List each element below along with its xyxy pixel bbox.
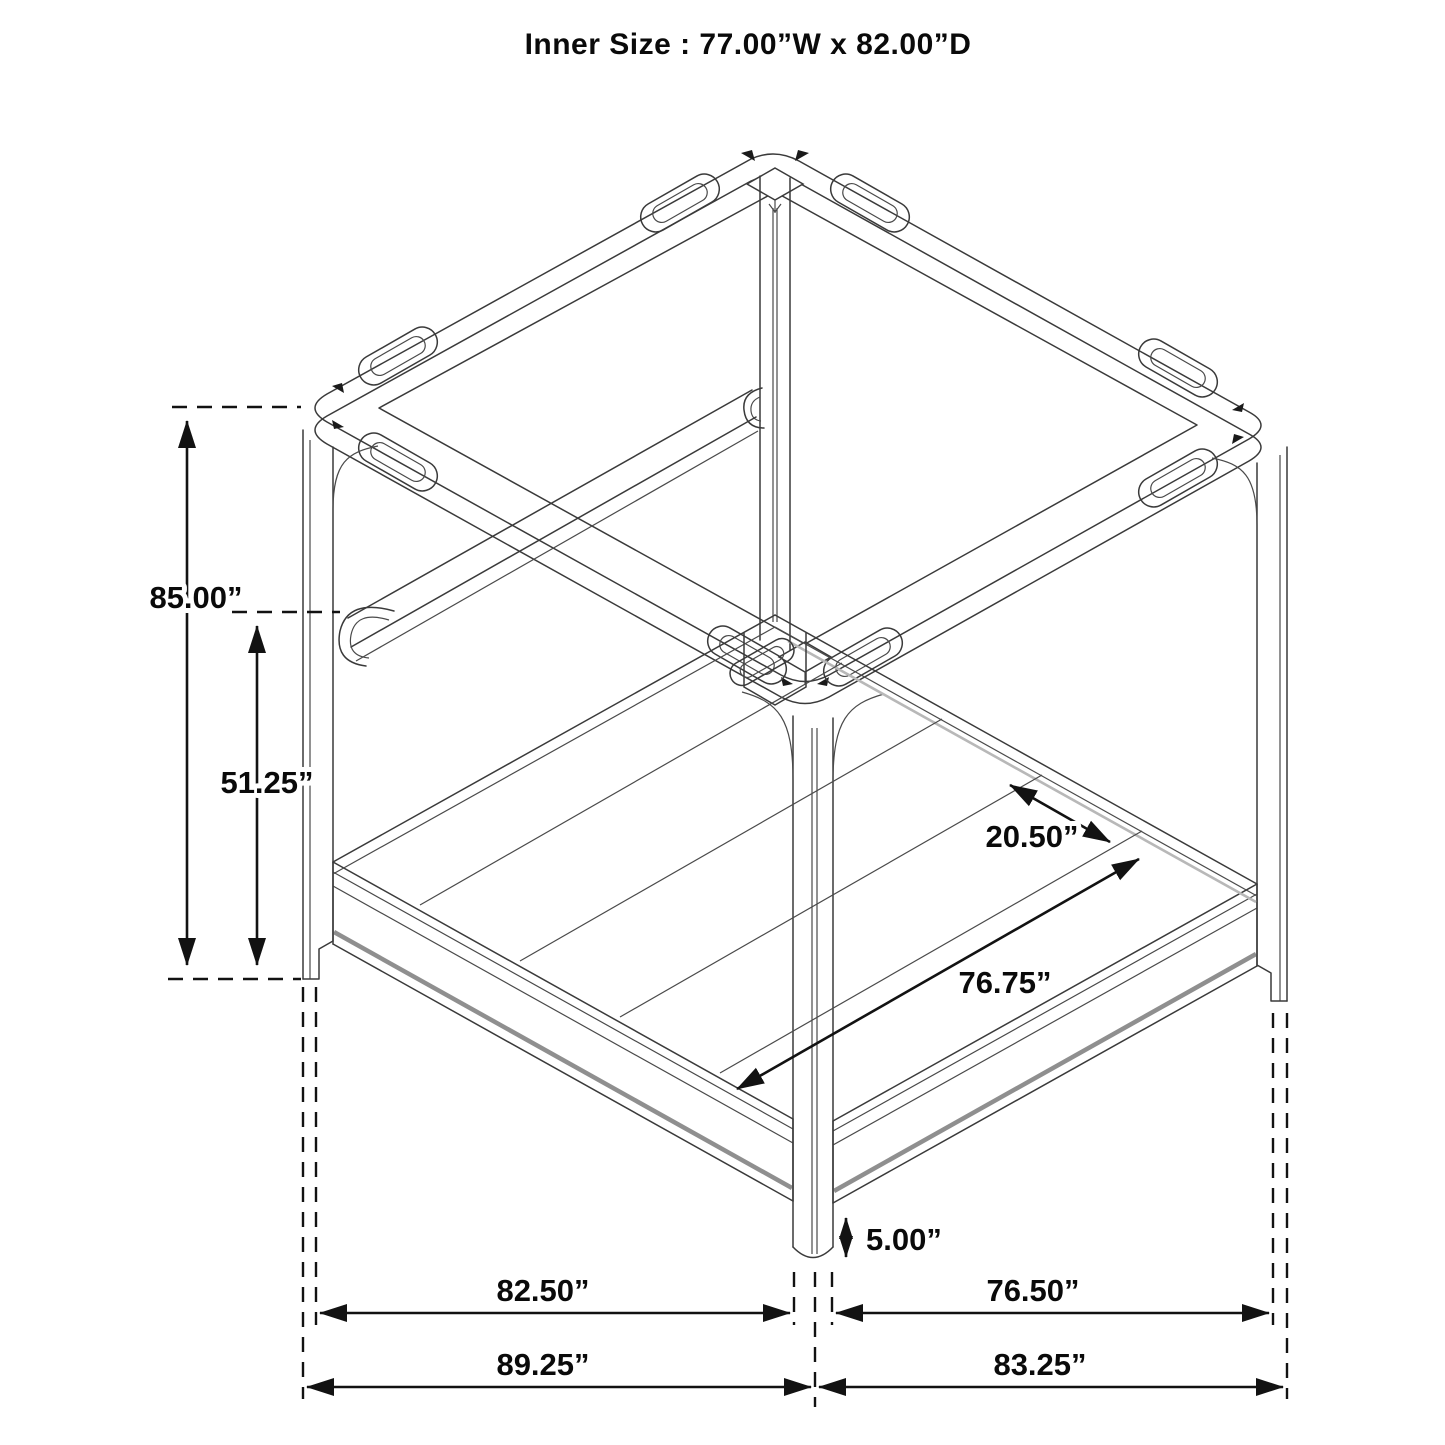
dimension-diagram: Inner Size : 77.00”W x 82.00”D 85.00” 51… — [0, 0, 1445, 1445]
canopy-slot-holes — [353, 169, 1223, 692]
right-post — [1212, 447, 1287, 1001]
left-post — [303, 430, 378, 979]
label-rear-rail-inset: 20.50” — [985, 819, 1078, 854]
rear-post — [744, 176, 790, 650]
drawing-title: Inner Size : 77.00”W x 82.00”D — [525, 28, 972, 61]
label-side-inner-width: 76.50” — [986, 1273, 1079, 1308]
label-overall-height: 85.00” — [149, 580, 242, 615]
canopy-top-frame — [315, 150, 1261, 704]
label-overall-depth: 89.25” — [496, 1347, 589, 1382]
dim-overall-height — [168, 407, 301, 979]
headboard-rail — [339, 390, 758, 666]
label-overall-width: 83.25” — [993, 1347, 1086, 1382]
label-headboard-height: 51.25” — [220, 765, 313, 800]
label-side-inner-depth: 82.50” — [496, 1273, 589, 1308]
platform-rails — [333, 615, 1257, 1203]
label-slat-span: 76.75” — [958, 965, 1051, 1000]
rear-corner-cap — [747, 168, 803, 200]
slat-deck — [420, 663, 1142, 1073]
bed-frame-drawing: Inner Size : 77.00”W x 82.00”D 85.00” 51… — [0, 0, 1445, 1445]
label-floor-clearance: 5.00” — [866, 1222, 942, 1257]
dim-extension-lines — [303, 987, 1287, 1407]
